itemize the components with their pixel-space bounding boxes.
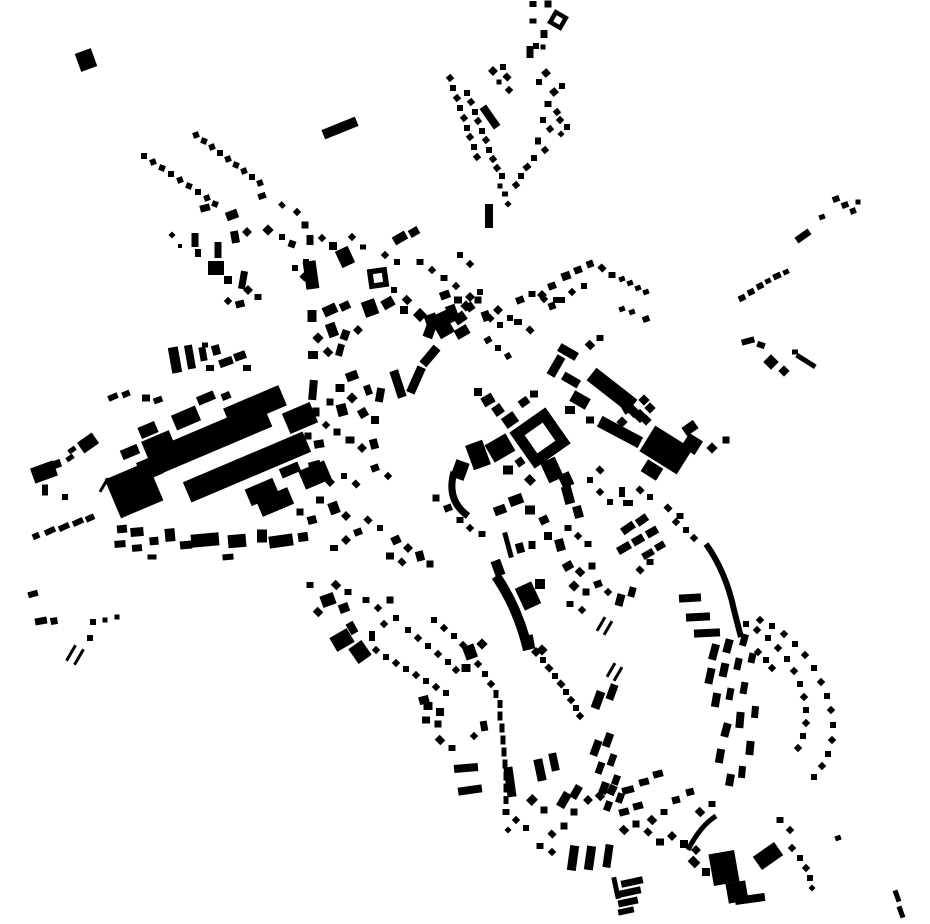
figure-ground-map — [0, 0, 930, 924]
map-canvas — [0, 0, 930, 924]
page: { "map_data": { "type": "figure_ground_m… — [0, 0, 930, 924]
